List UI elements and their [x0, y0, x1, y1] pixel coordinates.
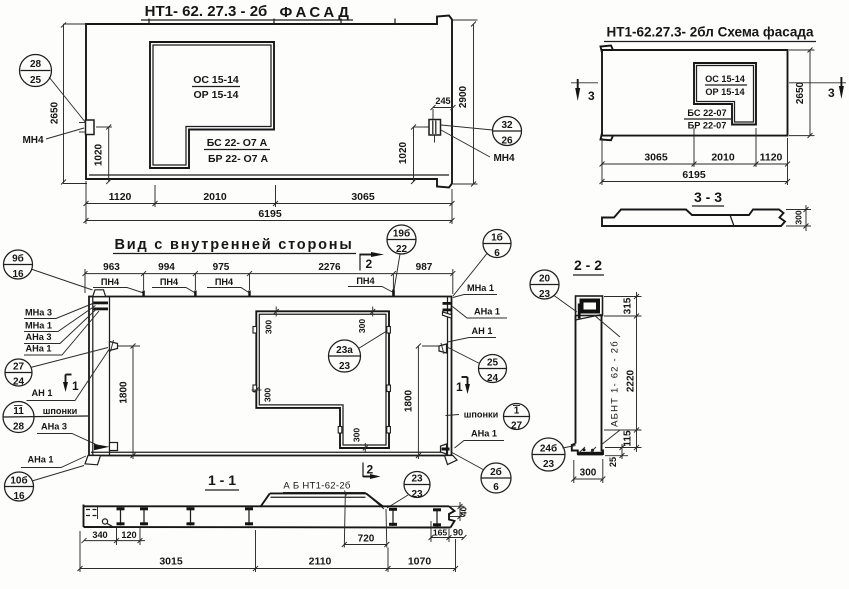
svg-text:ОС 15-14: ОС 15-14: [193, 74, 239, 86]
svg-text:28: 28: [13, 422, 25, 433]
svg-text:23а: 23а: [336, 345, 353, 356]
svg-text:АН 1: АН 1: [32, 388, 53, 398]
svg-text:2276: 2276: [318, 262, 341, 273]
svg-text:АБНТ 1- 62 - 2б: АБНТ 1- 62 - 2б: [610, 340, 621, 427]
svg-text:2 - 2: 2 - 2: [574, 257, 602, 273]
svg-text:АНа 3: АНа 3: [25, 332, 51, 342]
svg-text:ФАСАД: ФАСАД: [280, 4, 353, 21]
svg-text:АНа 3: АНа 3: [41, 422, 67, 432]
svg-text:3 - 3: 3 - 3: [694, 189, 722, 205]
svg-text:1б: 1б: [491, 232, 503, 244]
svg-text:20: 20: [539, 274, 551, 285]
svg-text:245: 245: [435, 96, 450, 106]
svg-text:ПН4: ПН4: [215, 277, 234, 287]
svg-text:ПН4: ПН4: [160, 277, 179, 287]
svg-text:2900: 2900: [458, 85, 469, 108]
svg-text:994: 994: [158, 262, 175, 273]
svg-text:10б: 10б: [10, 475, 27, 487]
svg-text:987: 987: [416, 262, 433, 273]
svg-text:25: 25: [487, 358, 499, 369]
svg-text:2650: 2650: [50, 101, 61, 124]
svg-text:3065: 3065: [351, 191, 375, 203]
svg-text:963: 963: [103, 262, 120, 273]
svg-text:3: 3: [588, 89, 595, 103]
svg-text:16: 16: [12, 269, 24, 280]
svg-text:40: 40: [459, 507, 469, 517]
svg-text:23: 23: [411, 489, 423, 500]
svg-text:ПН4: ПН4: [101, 277, 120, 287]
svg-text:1070: 1070: [408, 556, 432, 568]
svg-text:1020: 1020: [398, 141, 409, 164]
svg-text:19б: 19б: [393, 228, 410, 240]
svg-text:АНа 1: АНа 1: [474, 307, 500, 317]
svg-text:24: 24: [487, 373, 499, 384]
svg-text:БС 22- О7 А: БС 22- О7 А: [207, 137, 268, 149]
svg-text:6195: 6195: [682, 169, 706, 181]
svg-text:23: 23: [339, 361, 351, 372]
svg-text:16: 16: [13, 491, 25, 502]
svg-text:9б: 9б: [12, 253, 24, 265]
svg-text:6: 6: [493, 482, 499, 493]
svg-text:БР 22- О7 А: БР 22- О7 А: [208, 153, 268, 165]
svg-text:1800: 1800: [404, 389, 415, 412]
svg-text:1 - 1: 1 - 1: [208, 472, 236, 488]
svg-text:975: 975: [213, 262, 230, 273]
svg-text:ОС 15-14: ОС 15-14: [705, 74, 746, 84]
svg-text:МНа 3: МНа 3: [25, 308, 52, 318]
svg-text:шпонки: шпонки: [43, 406, 78, 416]
svg-text:2010: 2010: [711, 152, 735, 164]
svg-text:6: 6: [494, 248, 500, 259]
svg-text:165: 165: [433, 528, 448, 538]
svg-text:300: 300: [352, 428, 362, 443]
svg-text:340: 340: [92, 530, 107, 540]
svg-text:1120: 1120: [760, 152, 783, 164]
svg-text:А Б НТ1-62-2б: А Б НТ1-62-2б: [283, 481, 351, 492]
svg-text:НТ1- 62. 27.3 - 2б: НТ1- 62. 27.3 - 2б: [145, 3, 268, 20]
svg-text:ОР 15-14: ОР 15-14: [705, 87, 745, 97]
svg-text:2: 2: [367, 463, 374, 477]
svg-text:НТ1-62.27.3- 2бл Схема фасада: НТ1-62.27.3- 2бл Схема фасада: [606, 25, 814, 40]
svg-text:АНа 1: АНа 1: [471, 429, 497, 439]
svg-text:МНа 1: МНа 1: [467, 283, 494, 293]
svg-text:3065: 3065: [644, 152, 668, 164]
svg-text:ПН4: ПН4: [356, 276, 375, 286]
svg-text:26: 26: [501, 136, 513, 147]
svg-text:120: 120: [121, 530, 136, 540]
svg-text:МН4: МН4: [22, 135, 44, 146]
svg-text:БС 22-07: БС 22-07: [687, 108, 726, 118]
svg-text:2220: 2220: [626, 369, 637, 392]
svg-text:1800: 1800: [119, 381, 130, 404]
svg-text:3: 3: [828, 86, 835, 100]
svg-text:2010: 2010: [203, 191, 227, 203]
svg-text:22: 22: [396, 244, 408, 255]
svg-text:23: 23: [539, 289, 551, 300]
svg-text:6195: 6195: [258, 208, 282, 220]
svg-text:2: 2: [366, 257, 373, 271]
svg-text:720: 720: [358, 534, 375, 545]
svg-text:115: 115: [623, 430, 634, 447]
svg-text:АНа 1: АНа 1: [25, 344, 51, 354]
svg-text:11: 11: [13, 406, 24, 417]
svg-text:МНа 1: МНа 1: [25, 321, 52, 331]
svg-text:27: 27: [13, 362, 25, 373]
svg-text:32: 32: [501, 120, 513, 131]
svg-text:ОР 15-14: ОР 15-14: [194, 89, 239, 101]
svg-text:23: 23: [543, 459, 555, 470]
svg-text:300: 300: [264, 320, 274, 335]
svg-text:1120: 1120: [109, 191, 132, 203]
svg-text:27: 27: [511, 421, 523, 432]
svg-text:300: 300: [357, 319, 367, 334]
svg-text:300: 300: [263, 388, 273, 403]
svg-text:300: 300: [794, 210, 804, 225]
svg-text:300: 300: [580, 468, 597, 479]
svg-text:28: 28: [30, 59, 42, 70]
svg-text:90: 90: [453, 528, 463, 538]
svg-text:МН4: МН4: [493, 153, 515, 164]
svg-text:3015: 3015: [159, 556, 183, 568]
svg-text:шпонки: шпонки: [464, 410, 499, 420]
svg-text:24б: 24б: [540, 443, 557, 455]
svg-text:2650: 2650: [795, 81, 806, 104]
svg-text:24: 24: [13, 377, 25, 388]
svg-text:1020: 1020: [94, 143, 105, 166]
svg-text:315: 315: [623, 297, 634, 314]
svg-text:АНа 1: АНа 1: [27, 455, 53, 465]
svg-text:25: 25: [608, 457, 618, 467]
svg-text:2б: 2б: [490, 466, 502, 478]
svg-text:БР 22-07: БР 22-07: [688, 121, 727, 131]
svg-text:23: 23: [411, 474, 423, 485]
svg-text:1: 1: [456, 380, 463, 394]
svg-text:25: 25: [30, 75, 42, 86]
svg-text:2110: 2110: [309, 556, 332, 568]
svg-text:1: 1: [514, 406, 520, 417]
svg-text:Вид с внутренней стороны: Вид с внутренней стороны: [114, 237, 353, 253]
svg-text:АН 1: АН 1: [472, 326, 493, 336]
svg-text:1: 1: [72, 379, 79, 393]
